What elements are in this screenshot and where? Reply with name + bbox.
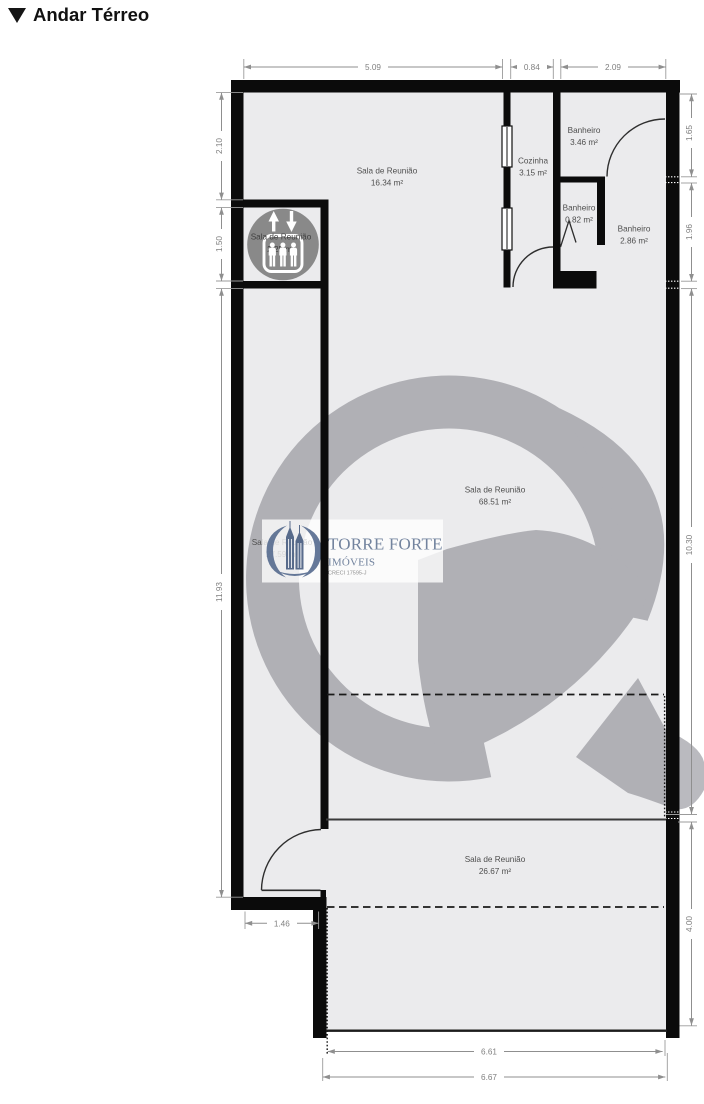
svg-text:Banheiro: Banheiro: [568, 126, 601, 135]
svg-text:CRECI 17595-J: CRECI 17595-J: [328, 571, 367, 577]
svg-text:0.82 m²: 0.82 m²: [565, 216, 593, 225]
svg-text:2.09: 2.09: [605, 63, 621, 72]
svg-text:16.34 m²: 16.34 m²: [371, 179, 404, 188]
svg-text:68.51 m²: 68.51 m²: [479, 498, 512, 507]
svg-text:Andar Térreo: Andar Térreo: [33, 4, 149, 25]
svg-text:2.86 m²: 2.86 m²: [620, 237, 648, 246]
svg-text:4.00: 4.00: [685, 916, 694, 932]
svg-text:Sala de Reunião: Sala de Reunião: [465, 486, 526, 495]
svg-text:Banheiro: Banheiro: [618, 225, 651, 234]
svg-text:Banheiro: Banheiro: [563, 204, 596, 213]
svg-text:0.84: 0.84: [524, 63, 540, 72]
svg-text:Sala de Reunião: Sala de Reunião: [357, 167, 418, 176]
svg-text:3.15 m²: 3.15 m²: [519, 169, 547, 178]
svg-text:26.67 m²: 26.67 m²: [479, 867, 512, 876]
svg-text:11.93: 11.93: [215, 582, 224, 602]
svg-text:1.96: 1.96: [685, 224, 694, 240]
svg-text:6.61: 6.61: [481, 1048, 497, 1057]
svg-text:IMÓVEIS: IMÓVEIS: [328, 557, 375, 569]
svg-text:1.65: 1.65: [685, 125, 694, 141]
svg-text:Cozinha: Cozinha: [518, 157, 548, 166]
svg-text:10.30: 10.30: [685, 534, 694, 555]
svg-text:6.67: 6.67: [481, 1073, 497, 1082]
svg-text:1.46: 1.46: [274, 919, 290, 928]
svg-text:2.10: 2.10: [215, 138, 224, 154]
svg-text:3.46 m²: 3.46 m²: [570, 138, 598, 147]
svg-text:5.09: 5.09: [365, 63, 381, 72]
svg-text:1.50: 1.50: [215, 236, 224, 252]
svg-text:Sala de Reunião: Sala de Reunião: [465, 855, 526, 864]
svg-text:TORRE FORTE: TORRE FORTE: [328, 535, 443, 554]
svg-text:Sala de Reunião: Sala de Reunião: [251, 233, 312, 242]
